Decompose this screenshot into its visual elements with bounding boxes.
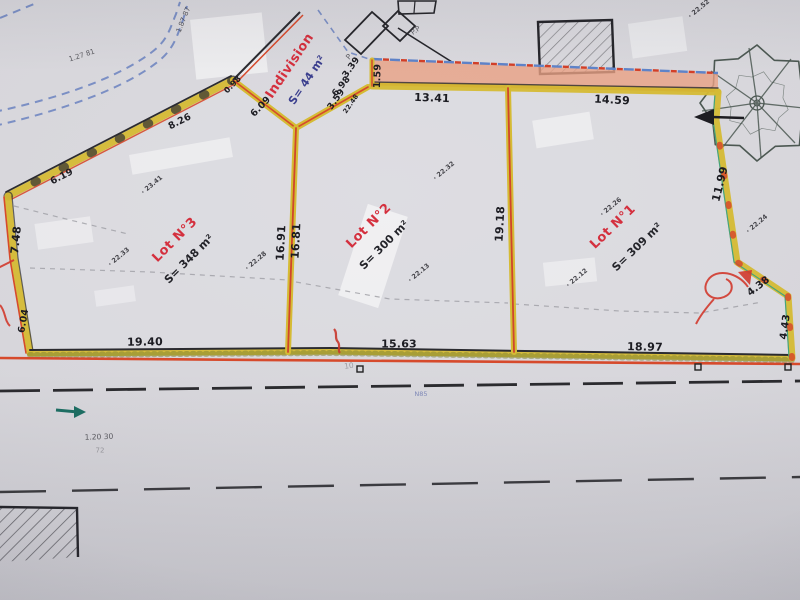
measurement-label: 6.04 xyxy=(17,308,31,334)
measurement-label: 6.09 xyxy=(249,95,273,119)
spot-elevation-label: 22.28 xyxy=(244,250,268,271)
spot-elevation-label: 23.41 xyxy=(140,174,164,195)
measurement-label: 14.59 xyxy=(594,94,630,107)
measurement-label: 13.41 xyxy=(414,92,450,104)
spot-elevation-label: 22.24 xyxy=(745,213,769,234)
annotation-label: 1.27 81 xyxy=(68,49,96,64)
spot-elevation-label: 22.13 xyxy=(407,262,431,283)
measurement-label: 7.48 xyxy=(9,226,23,255)
survey-plan-photo: 13.4114.591.593.393.5922.486.986.090.988… xyxy=(0,0,800,600)
measurement-label: 19.18 xyxy=(494,206,507,242)
measurement-label: 16.91 xyxy=(275,225,288,261)
labels-layer: 13.4114.591.593.393.5922.486.986.090.988… xyxy=(0,0,800,600)
measurement-label: 18.97 xyxy=(627,341,663,353)
annotation-label: P.P xyxy=(410,25,422,36)
measurement-label: 8.26 xyxy=(167,112,193,131)
annotation-label: 72 xyxy=(96,448,105,455)
spot-elevation-label: 22.12 xyxy=(565,267,589,288)
annotation-label: 1.20 30 xyxy=(85,433,114,441)
annotation-label: 1.87 87 xyxy=(176,6,192,33)
spot-elevation-label: 22.32 xyxy=(432,160,456,181)
annotation-label: N85 xyxy=(414,391,427,398)
measurement-label: 4.43 xyxy=(779,314,792,341)
measurement-label: 16.81 xyxy=(290,223,303,259)
spot-elevation-label: 22.33 xyxy=(107,246,131,267)
annotation-label: P xyxy=(345,53,354,61)
measurement-label: 19.40 xyxy=(127,336,163,348)
spot-elevation-label: 22.52 xyxy=(687,0,711,20)
measurement-label: 15.63 xyxy=(381,339,417,350)
measurement-label: 11.99 xyxy=(710,165,729,202)
measurement-label: 0.98 xyxy=(223,75,243,95)
measurement-label: 4.38 xyxy=(746,275,772,299)
measurement-label: 6.19 xyxy=(49,167,75,186)
annotation-label: 10 xyxy=(344,362,354,371)
measurement-label: 1.59 xyxy=(373,64,383,89)
